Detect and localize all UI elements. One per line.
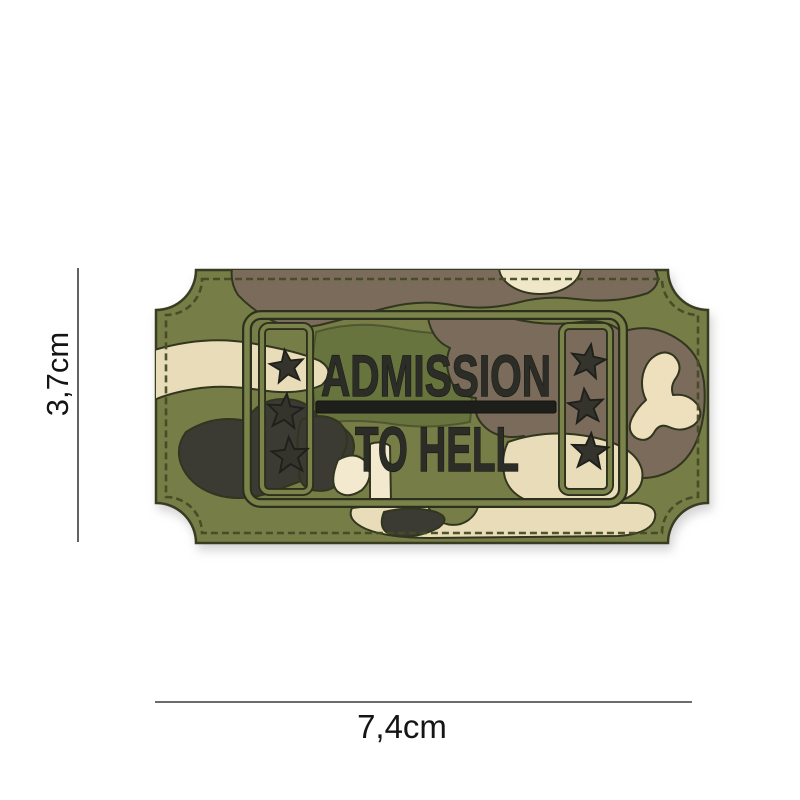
product-image-canvas: 3,7cm 7,4cm <box>0 0 800 800</box>
camo-blob-cream-top <box>499 240 581 294</box>
product-image: 3,7cm 7,4cm <box>0 0 800 800</box>
patch-photo: ADMISSION TO HELL <box>154 240 708 543</box>
height-dimension-label: 3,7cm <box>40 332 75 416</box>
patch-text-line2: TO HELL <box>355 415 519 485</box>
divider-bar <box>316 401 556 413</box>
patch-text-line1: ADMISSION <box>321 344 551 409</box>
width-dimension-label: 7,4cm <box>357 708 447 745</box>
